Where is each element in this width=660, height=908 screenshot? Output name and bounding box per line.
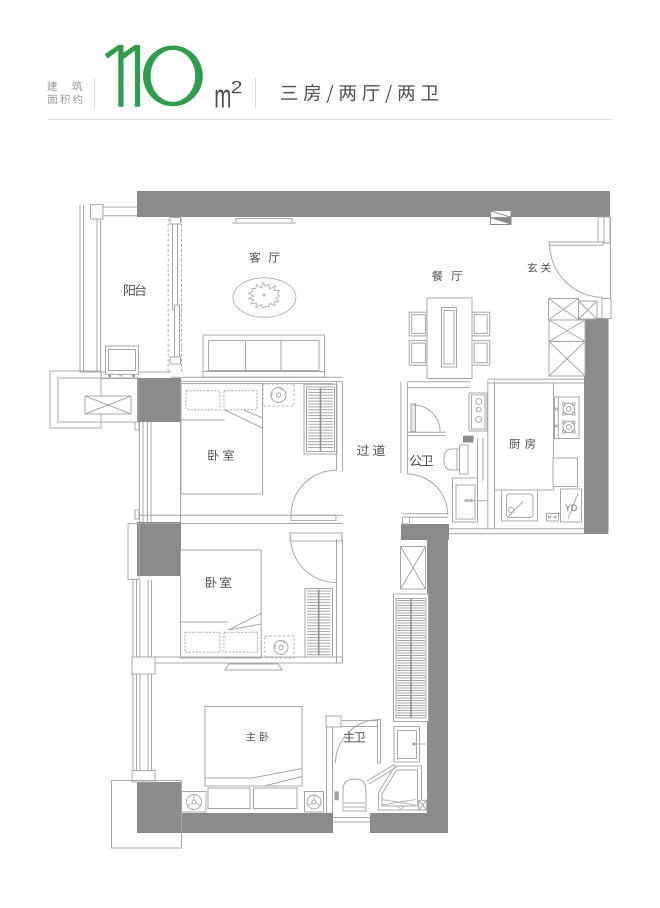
- svg-text:YD: YD: [565, 503, 578, 513]
